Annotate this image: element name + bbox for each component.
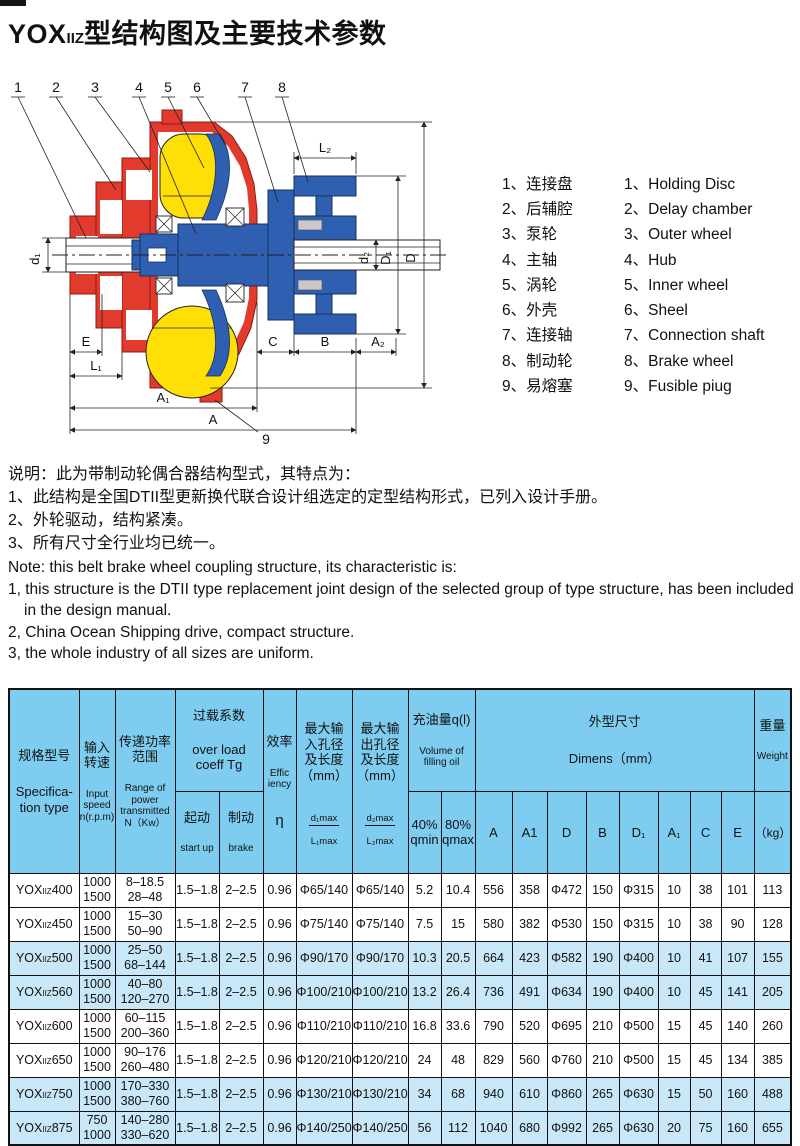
value-cell: 90 bbox=[721, 907, 754, 941]
value-cell: Φ630 bbox=[619, 1111, 658, 1145]
part-name-cn: 5、涡轮 bbox=[502, 273, 624, 295]
model-cell: YOXIIZ600 bbox=[9, 1009, 79, 1043]
parts-list-item: 4、主轴4、Hub bbox=[502, 246, 798, 271]
part-name-en: 7、Connection shaft bbox=[624, 323, 798, 345]
value-cell: 45 bbox=[690, 1009, 721, 1043]
value-cell: 2–2.5 bbox=[219, 1043, 263, 1077]
model-cell: YOXIIZ650 bbox=[9, 1043, 79, 1077]
speed-cell: 750 1000 bbox=[79, 1111, 115, 1145]
speed-cell: 1000 1500 bbox=[79, 1077, 115, 1111]
model-prefix: YOX bbox=[16, 985, 42, 999]
model-cell: YOXIIZ450 bbox=[9, 907, 79, 941]
header-dim-D1: D₁ bbox=[619, 791, 658, 873]
value-cell: 20 bbox=[658, 1111, 690, 1145]
value-cell: Φ75/140 bbox=[352, 907, 408, 941]
frac-L2max: L₂max bbox=[365, 837, 396, 848]
value-cell: 2–2.5 bbox=[219, 1111, 263, 1145]
model-prefix: YOX bbox=[16, 1019, 42, 1033]
title-rest: 型结构图及主要技术参数 bbox=[84, 19, 387, 49]
header-oil-en: Volume of filling oil bbox=[409, 746, 475, 769]
value-cell: 41 bbox=[690, 941, 721, 975]
title-subscript: IIZ bbox=[67, 30, 85, 47]
part-name-en: 4、Hub bbox=[624, 248, 798, 270]
value-cell: 210 bbox=[586, 1043, 619, 1077]
value-cell: 2–2.5 bbox=[219, 1009, 263, 1043]
header-spec-en: Specifica- tion type bbox=[10, 784, 79, 815]
speed-cell: 1000 1500 bbox=[79, 873, 115, 907]
header-startup-cn: 起动 bbox=[176, 810, 219, 826]
header-output-bore: 最大输 出孔径 及长度 （mm） d₂max L₂max bbox=[352, 689, 408, 873]
callout-9: 9 bbox=[262, 431, 270, 447]
power-cell: 90–176 260–480 bbox=[115, 1043, 175, 1077]
value-cell: 2–2.5 bbox=[219, 941, 263, 975]
value-cell: 1.5–1.8 bbox=[175, 1043, 219, 1077]
value-cell: 0.96 bbox=[263, 975, 296, 1009]
header-output-bore-frac: d₂max L₂max bbox=[365, 803, 396, 859]
parts-list: 1、连接盘1、Holding Disc2、后辅腔2、Delay chamber3… bbox=[502, 170, 798, 398]
header-brake-en: brake bbox=[220, 843, 263, 855]
parts-list-item: 2、后辅腔2、Delay chamber bbox=[502, 195, 798, 220]
value-cell: Φ315 bbox=[619, 873, 658, 907]
table-row: YOXIIZ4001000 15008–18.5 28–481.5–1.82–2… bbox=[9, 873, 791, 907]
value-cell: 150 bbox=[586, 873, 619, 907]
value-cell: 1040 bbox=[475, 1111, 512, 1145]
value-cell: 610 bbox=[512, 1077, 547, 1111]
note-cn-line: 2、外轮驱动，结构紧凑。 bbox=[8, 509, 607, 532]
value-cell: Φ860 bbox=[547, 1077, 586, 1111]
header-input-bore-cn: 最大输 入孔径 及长度 （mm） bbox=[297, 721, 352, 783]
value-cell: 2–2.5 bbox=[219, 1077, 263, 1111]
header-power-cn: 传递功率 范围 bbox=[116, 734, 175, 765]
parts-list-item: 3、泵轮3、Outer wheel bbox=[502, 221, 798, 246]
header-output-bore-cn: 最大输 出孔径 及长度 （mm） bbox=[353, 721, 408, 783]
header-weight: 重量 Weight bbox=[754, 689, 791, 791]
value-cell: 140 bbox=[721, 1009, 754, 1043]
dim-label-E: E bbox=[82, 334, 91, 349]
value-cell: 150 bbox=[586, 907, 619, 941]
value-cell: 829 bbox=[475, 1043, 512, 1077]
power-cell: 25–50 68–144 bbox=[115, 941, 175, 975]
value-cell: 265 bbox=[586, 1111, 619, 1145]
value-cell: Φ992 bbox=[547, 1111, 586, 1145]
value-cell: 33.6 bbox=[441, 1009, 475, 1043]
value-cell: 0.96 bbox=[263, 1077, 296, 1111]
table-row: YOXIIZ5601000 150040–80 120–2701.5–1.82–… bbox=[9, 975, 791, 1009]
title-prefix: YOX bbox=[8, 19, 67, 49]
value-cell: 520 bbox=[512, 1009, 547, 1043]
catalog-page: { "title": {"prefix": "YOX", "sub": "IIZ… bbox=[0, 0, 800, 1072]
table-body: YOXIIZ4001000 15008–18.5 28–481.5–1.82–2… bbox=[9, 873, 791, 1145]
header-dim-B: B bbox=[586, 791, 619, 873]
parts-list-item: 6、外壳6、Sheel bbox=[502, 296, 798, 321]
model-prefix: YOX bbox=[16, 1121, 42, 1135]
frac-L1max: L₁max bbox=[309, 837, 339, 848]
callout-1: 1 bbox=[14, 79, 22, 95]
header-efficiency: 效率 Effic iency η bbox=[263, 689, 296, 873]
value-cell: 24 bbox=[408, 1043, 441, 1077]
value-cell: 10 bbox=[658, 941, 690, 975]
value-cell: 75 bbox=[690, 1111, 721, 1145]
header-dim-A: A bbox=[475, 791, 512, 873]
header-dim-A1: A1 bbox=[512, 791, 547, 873]
value-cell: Φ400 bbox=[619, 975, 658, 1009]
header-power-en: Range of power transmitted N（Kw） bbox=[116, 783, 175, 829]
header-overload-en: over load coeff Tg bbox=[176, 742, 263, 773]
page-title: YOXIIZ型结构图及主要技术参数 bbox=[8, 12, 387, 51]
value-cell: 0.96 bbox=[263, 1043, 296, 1077]
dim-label-A2: A₂ bbox=[371, 334, 385, 349]
value-cell: 107 bbox=[721, 941, 754, 975]
value-cell: Φ530 bbox=[547, 907, 586, 941]
table-row: YOXIIZ5001000 150025–50 68–1441.5–1.82–2… bbox=[9, 941, 791, 975]
value-cell: 1.5–1.8 bbox=[175, 975, 219, 1009]
part-name-cn: 8、制动轮 bbox=[502, 349, 624, 371]
part-name-en: 3、Outer wheel bbox=[624, 222, 798, 244]
note-en-line: 3, the whole industry of all sizes are u… bbox=[8, 643, 796, 665]
value-cell: Φ315 bbox=[619, 907, 658, 941]
value-cell: 358 bbox=[512, 873, 547, 907]
value-cell: 134 bbox=[721, 1043, 754, 1077]
parts-list-item: 8、制动轮8、Brake wheel bbox=[502, 347, 798, 372]
value-cell: Φ400 bbox=[619, 941, 658, 975]
value-cell: Φ120/210 bbox=[296, 1043, 352, 1077]
model-prefix: YOX bbox=[16, 1087, 42, 1101]
table-header: 规格型号 Specifica- tion type 输入 转速 Input sp… bbox=[9, 689, 791, 873]
value-cell: 113 bbox=[754, 873, 791, 907]
value-cell: 1.5–1.8 bbox=[175, 941, 219, 975]
model-num: 450 bbox=[52, 917, 73, 931]
note-cn-line: 3、所有尺寸全行业均已统一。 bbox=[8, 532, 607, 555]
header-oil-cn: 充油量q(l) bbox=[409, 712, 475, 728]
value-cell: 26.4 bbox=[441, 975, 475, 1009]
header-speed: 输入 转速 Input speed n(r.p.m) bbox=[79, 689, 115, 873]
header-weight-unit: （kg） bbox=[754, 791, 791, 873]
callout-5: 5 bbox=[164, 79, 172, 95]
header-overload-cn: 过载系数 bbox=[176, 708, 263, 724]
model-sub: IIZ bbox=[42, 921, 51, 930]
value-cell: 15 bbox=[658, 1077, 690, 1111]
value-cell: 664 bbox=[475, 941, 512, 975]
value-cell: Φ100/210 bbox=[352, 975, 408, 1009]
model-prefix: YOX bbox=[16, 1053, 42, 1067]
table-row: YOXIIZ7501000 1500170–330 380–7601.5–1.8… bbox=[9, 1077, 791, 1111]
speed-cell: 1000 1500 bbox=[79, 975, 115, 1009]
callout-2: 2 bbox=[52, 79, 60, 95]
value-cell: 5.2 bbox=[408, 873, 441, 907]
value-cell: Φ582 bbox=[547, 941, 586, 975]
model-num: 750 bbox=[52, 1087, 73, 1101]
callout-4: 4 bbox=[135, 79, 143, 95]
table-row: YOXIIZ4501000 150015–30 50–901.5–1.82–2.… bbox=[9, 907, 791, 941]
value-cell: Φ760 bbox=[547, 1043, 586, 1077]
part-name-en: 8、Brake wheel bbox=[624, 349, 798, 371]
value-cell: 0.96 bbox=[263, 907, 296, 941]
value-cell: 2–2.5 bbox=[219, 907, 263, 941]
part-name-cn: 9、易熔塞 bbox=[502, 374, 624, 396]
value-cell: Φ65/140 bbox=[352, 873, 408, 907]
value-cell: 205 bbox=[754, 975, 791, 1009]
value-cell: Φ140/250 bbox=[296, 1111, 352, 1145]
header-eff-symbol: η bbox=[264, 812, 296, 829]
header-qmin: 40% qmin bbox=[408, 791, 441, 873]
value-cell: 491 bbox=[512, 975, 547, 1009]
value-cell: 655 bbox=[754, 1111, 791, 1145]
header-speed-cn: 输入 转速 bbox=[80, 740, 115, 771]
note-en-line: 1, this structure is the DTII type repla… bbox=[8, 579, 796, 622]
header-input-bore: 最大输 入孔径 及长度 （mm） d₁max L₁max bbox=[296, 689, 352, 873]
model-cell: YOXIIZ750 bbox=[9, 1077, 79, 1111]
value-cell: Φ695 bbox=[547, 1009, 586, 1043]
value-cell: Φ500 bbox=[619, 1043, 658, 1077]
model-sub: IIZ bbox=[42, 955, 51, 964]
model-num: 650 bbox=[52, 1053, 73, 1067]
value-cell: Φ110/210 bbox=[296, 1009, 352, 1043]
header-weight-cn: 重量 bbox=[755, 718, 791, 734]
part-name-cn: 7、连接轴 bbox=[502, 323, 624, 345]
value-cell: 112 bbox=[441, 1111, 475, 1145]
header-dim-C: C bbox=[690, 791, 721, 873]
model-cell: YOXIIZ875 bbox=[9, 1111, 79, 1145]
value-cell: Φ630 bbox=[619, 1077, 658, 1111]
frac-d2max: d₂max bbox=[365, 814, 396, 826]
value-cell: 38 bbox=[690, 907, 721, 941]
part-name-en: 9、Fusible piug bbox=[624, 374, 798, 396]
model-prefix: YOX bbox=[16, 917, 42, 931]
value-cell: Φ100/210 bbox=[296, 975, 352, 1009]
header-qmax: 80% qmax bbox=[441, 791, 475, 873]
value-cell: 50 bbox=[690, 1077, 721, 1111]
speed-cell: 1000 1500 bbox=[79, 907, 115, 941]
part-name-cn: 4、主轴 bbox=[502, 248, 624, 270]
header-oil-volume: 充油量q(l) Volume of filling oil bbox=[408, 689, 475, 791]
header-speed-en: Input speed n(r.p.m) bbox=[80, 789, 115, 824]
value-cell: 736 bbox=[475, 975, 512, 1009]
header-overload: 过载系数 over load coeff Tg bbox=[175, 689, 263, 791]
notes-english: Note: this belt brake wheel coupling str… bbox=[8, 557, 796, 665]
model-sub: IIZ bbox=[42, 1091, 51, 1100]
value-cell: 2–2.5 bbox=[219, 975, 263, 1009]
frac-d1max: d₁max bbox=[309, 814, 339, 826]
value-cell: 160 bbox=[721, 1077, 754, 1111]
value-cell: Φ65/140 bbox=[296, 873, 352, 907]
part-name-en: 6、Sheel bbox=[624, 298, 798, 320]
header-dimensions: 外型尺寸 Dimens（mm） bbox=[475, 689, 754, 791]
header-eff-en: Effic iency bbox=[264, 768, 296, 791]
notes-chinese: 说明：此为带制动轮偶合器结构型式，其特点为： 1、此结构是全国DTII型更新换代… bbox=[8, 463, 607, 555]
value-cell: Φ634 bbox=[547, 975, 586, 1009]
value-cell: 16.8 bbox=[408, 1009, 441, 1043]
header-startup-en: start up bbox=[176, 843, 219, 855]
power-cell: 170–330 380–760 bbox=[115, 1077, 175, 1111]
model-prefix: YOX bbox=[16, 883, 42, 897]
power-cell: 15–30 50–90 bbox=[115, 907, 175, 941]
model-sub: IIZ bbox=[42, 1125, 51, 1134]
table-row: YOXIIZ875750 1000140–280 330–6201.5–1.82… bbox=[9, 1111, 791, 1145]
model-num: 560 bbox=[52, 985, 73, 999]
value-cell: 385 bbox=[754, 1043, 791, 1077]
callout-8: 8 bbox=[278, 79, 286, 95]
part-name-cn: 6、外壳 bbox=[502, 298, 624, 320]
part-name-cn: 2、后辅腔 bbox=[502, 197, 624, 219]
value-cell: 556 bbox=[475, 873, 512, 907]
input-shaft bbox=[66, 238, 142, 272]
scan-artifact bbox=[0, 0, 26, 6]
part-name-en: 5、Inner wheel bbox=[624, 273, 798, 295]
value-cell: 1.5–1.8 bbox=[175, 907, 219, 941]
value-cell: 38 bbox=[690, 873, 721, 907]
model-sub: IIZ bbox=[42, 1057, 51, 1066]
model-num: 400 bbox=[52, 883, 73, 897]
value-cell: 265 bbox=[586, 1077, 619, 1111]
value-cell: 15 bbox=[658, 1043, 690, 1077]
value-cell: 128 bbox=[754, 907, 791, 941]
value-cell: 10 bbox=[658, 873, 690, 907]
value-cell: 45 bbox=[690, 1043, 721, 1077]
value-cell: Φ130/210 bbox=[352, 1077, 408, 1111]
value-cell: 160 bbox=[721, 1111, 754, 1145]
parts-list-item: 9、易熔塞9、Fusible piug bbox=[502, 372, 798, 397]
value-cell: 0.96 bbox=[263, 873, 296, 907]
header-brake-cn: 制动 bbox=[220, 810, 263, 826]
header-dim-E: E bbox=[721, 791, 754, 873]
value-cell: 56 bbox=[408, 1111, 441, 1145]
power-cell: 60–115 200–360 bbox=[115, 1009, 175, 1043]
spec-table: 规格型号 Specifica- tion type 输入 转速 Input sp… bbox=[8, 688, 792, 1146]
header-power: 传递功率 范围 Range of power transmitted N（Kw） bbox=[115, 689, 175, 873]
header-startup: 起动 start up bbox=[175, 791, 219, 873]
table-row: YOXIIZ6501000 150090–176 260–4801.5–1.82… bbox=[9, 1043, 791, 1077]
value-cell: 141 bbox=[721, 975, 754, 1009]
dim-label-A: A bbox=[209, 412, 218, 427]
model-num: 875 bbox=[52, 1121, 73, 1135]
structure-diagram: 1 2 3 4 5 6 7 8 9 d₁ E L₁ A₁ A C B A₂ L₂… bbox=[0, 70, 500, 470]
dim-label-D1: D₁ bbox=[378, 251, 393, 265]
value-cell: Φ110/210 bbox=[352, 1009, 408, 1043]
value-cell: 15 bbox=[658, 1009, 690, 1043]
header-dims-cn: 外型尺寸 bbox=[476, 714, 754, 730]
value-cell: 155 bbox=[754, 941, 791, 975]
model-cell: YOXIIZ560 bbox=[9, 975, 79, 1009]
header-dims-en: Dimens（mm） bbox=[476, 751, 754, 767]
value-cell: Φ140/250 bbox=[352, 1111, 408, 1145]
value-cell: 1.5–1.8 bbox=[175, 873, 219, 907]
value-cell: 423 bbox=[512, 941, 547, 975]
model-prefix: YOX bbox=[16, 951, 42, 965]
header-weight-en: Weight bbox=[755, 751, 791, 763]
header-eff-cn: 效率 bbox=[264, 734, 296, 750]
dim-label-A1: A₁ bbox=[156, 390, 170, 405]
value-cell: Φ130/210 bbox=[296, 1077, 352, 1111]
dim-label-L1: L₁ bbox=[90, 358, 102, 373]
coupling-cross-section: 1 2 3 4 5 6 7 8 9 d₁ E L₁ A₁ A C B A₂ L₂… bbox=[0, 70, 500, 470]
value-cell: 0.96 bbox=[263, 941, 296, 975]
value-cell: 7.5 bbox=[408, 907, 441, 941]
value-cell: 580 bbox=[475, 907, 512, 941]
model-cell: YOXIIZ400 bbox=[9, 873, 79, 907]
speed-cell: 1000 1500 bbox=[79, 1009, 115, 1043]
value-cell: 45 bbox=[690, 975, 721, 1009]
parts-list-item: 1、连接盘1、Holding Disc bbox=[502, 170, 798, 195]
value-cell: 680 bbox=[512, 1111, 547, 1145]
dim-label-C: C bbox=[268, 334, 277, 349]
value-cell: 190 bbox=[586, 941, 619, 975]
value-cell: 560 bbox=[512, 1043, 547, 1077]
callout-6: 6 bbox=[193, 79, 201, 95]
power-cell: 40–80 120–270 bbox=[115, 975, 175, 1009]
value-cell: Φ75/140 bbox=[296, 907, 352, 941]
header-spec-cn: 规格型号 bbox=[10, 748, 79, 764]
value-cell: Φ90/170 bbox=[352, 941, 408, 975]
value-cell: 68 bbox=[441, 1077, 475, 1111]
header-dim-D: D bbox=[547, 791, 586, 873]
value-cell: 260 bbox=[754, 1009, 791, 1043]
power-cell: 8–18.5 28–48 bbox=[115, 873, 175, 907]
model-num: 500 bbox=[52, 951, 73, 965]
parts-list-item: 5、涡轮5、Inner wheel bbox=[502, 271, 798, 296]
part-name-en: 1、Holding Disc bbox=[624, 172, 798, 194]
value-cell: 34 bbox=[408, 1077, 441, 1111]
callout-3: 3 bbox=[91, 79, 99, 95]
dim-label-d2: d₂ bbox=[356, 252, 371, 264]
note-cn-line: 1、此结构是全国DTII型更新换代联合设计组选定的定型结构形式，已列入设计手册。 bbox=[8, 486, 607, 509]
value-cell: 15 bbox=[441, 907, 475, 941]
value-cell: 101 bbox=[721, 873, 754, 907]
value-cell: 0.96 bbox=[263, 1009, 296, 1043]
header-dim-A1b: A₁ bbox=[658, 791, 690, 873]
value-cell: 0.96 bbox=[263, 1111, 296, 1145]
value-cell: 1.5–1.8 bbox=[175, 1111, 219, 1145]
callout-7: 7 bbox=[241, 79, 249, 95]
dim-label-L2: L₂ bbox=[319, 140, 331, 155]
value-cell: 48 bbox=[441, 1043, 475, 1077]
value-cell: Φ120/210 bbox=[352, 1043, 408, 1077]
value-cell: 940 bbox=[475, 1077, 512, 1111]
value-cell: 10.4 bbox=[441, 873, 475, 907]
value-cell: 210 bbox=[586, 1009, 619, 1043]
model-cell: YOXIIZ500 bbox=[9, 941, 79, 975]
parts-list-item: 7、连接轴7、Connection shaft bbox=[502, 322, 798, 347]
value-cell: 10 bbox=[658, 907, 690, 941]
header-spec: 规格型号 Specifica- tion type bbox=[9, 689, 79, 873]
value-cell: 1.5–1.8 bbox=[175, 1009, 219, 1043]
value-cell: Φ472 bbox=[547, 873, 586, 907]
value-cell: 382 bbox=[512, 907, 547, 941]
header-brake: 制动 brake bbox=[219, 791, 263, 873]
power-cell: 140–280 330–620 bbox=[115, 1111, 175, 1145]
speed-cell: 1000 1500 bbox=[79, 1043, 115, 1077]
dim-label-d1: d₁ bbox=[27, 253, 42, 265]
part-name-cn: 3、泵轮 bbox=[502, 222, 624, 244]
dim-label-D: D bbox=[403, 253, 418, 262]
value-cell: Φ500 bbox=[619, 1009, 658, 1043]
speed-cell: 1000 1500 bbox=[79, 941, 115, 975]
note-en-line: Note: this belt brake wheel coupling str… bbox=[8, 557, 796, 579]
dim-label-B: B bbox=[321, 334, 330, 349]
note-cn-line: 说明：此为带制动轮偶合器结构型式，其特点为： bbox=[8, 463, 607, 486]
value-cell: 20.5 bbox=[441, 941, 475, 975]
model-sub: IIZ bbox=[42, 887, 51, 896]
value-cell: 10 bbox=[658, 975, 690, 1009]
value-cell: 488 bbox=[754, 1077, 791, 1111]
model-sub: IIZ bbox=[42, 989, 51, 998]
part-name-cn: 1、连接盘 bbox=[502, 172, 624, 194]
value-cell: 1.5–1.8 bbox=[175, 1077, 219, 1111]
model-sub: IIZ bbox=[42, 1023, 51, 1032]
value-cell: 13.2 bbox=[408, 975, 441, 1009]
header-input-bore-frac: d₁max L₁max bbox=[309, 803, 339, 859]
value-cell: 790 bbox=[475, 1009, 512, 1043]
value-cell: 10.3 bbox=[408, 941, 441, 975]
